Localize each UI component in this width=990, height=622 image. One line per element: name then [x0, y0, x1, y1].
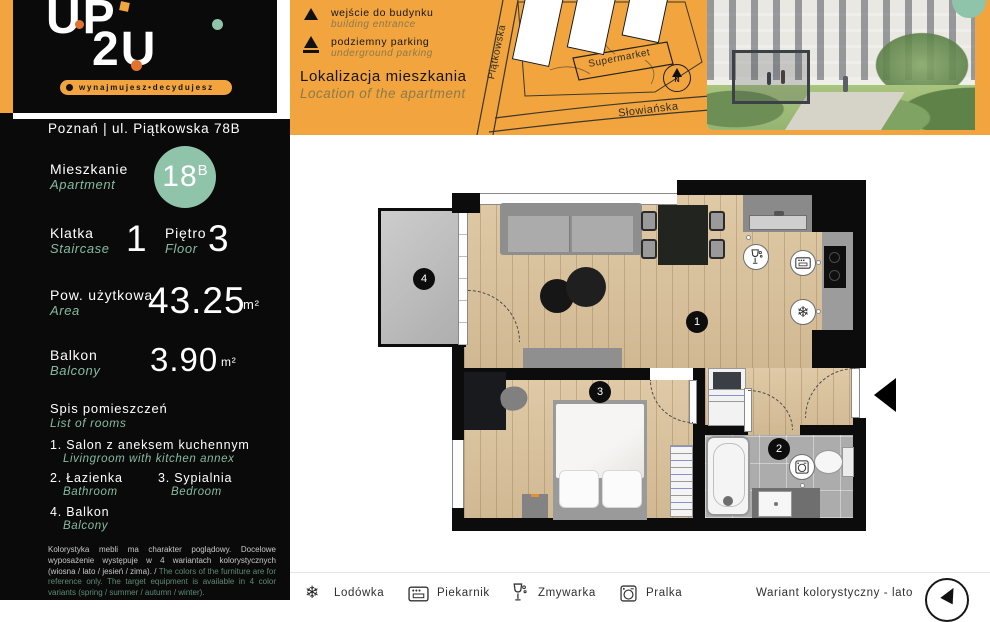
sofa [500, 203, 642, 255]
oven-icon [790, 250, 816, 276]
wall [853, 232, 866, 330]
appliance-legend-bar: ❄ Lodówka Piekarnik Zmywarka Pralka Wari… [290, 572, 990, 601]
room-badge-living: 1 [686, 311, 708, 333]
fridge-label: Lodówka [334, 587, 384, 599]
floor-plan: ❄ 1 2 3 4 [0, 0, 990, 600]
entrance-arrow-icon [874, 378, 896, 412]
dining-chair [641, 239, 657, 259]
hallway-shelf-box [713, 372, 741, 389]
fridge-glyph: ❄ [305, 583, 319, 602]
washer-icon [789, 454, 815, 480]
bed-pillow [602, 470, 642, 508]
bedroom-radiator [670, 445, 693, 517]
color-variant-label: Wariant kolorystyczny - lato [756, 587, 913, 599]
nightstand [522, 494, 548, 518]
sofa-cushion [572, 216, 633, 252]
coffee-table [566, 267, 606, 307]
room-badge-balcony: 4 [413, 268, 435, 290]
burner [829, 270, 840, 281]
marker-dot [816, 260, 821, 265]
wall [677, 180, 866, 195]
wall [452, 518, 866, 531]
wardrobe [464, 372, 506, 430]
nightstand-detail [531, 494, 539, 497]
room-badge-bathroom: 2 [768, 438, 790, 460]
dining-chair [709, 239, 725, 259]
kitchen-sink [749, 215, 807, 230]
fridge-glyph: ❄ [797, 303, 810, 321]
toilet-bowl [814, 450, 843, 474]
bathtub-faucet [723, 496, 733, 506]
footer-compass [925, 578, 969, 622]
burner [829, 252, 840, 263]
dining-table [658, 205, 708, 265]
oven-label: Piekarnik [437, 587, 490, 599]
sofa-cushion [508, 216, 570, 252]
washer-label: Pralka [646, 587, 682, 599]
marker-dot [800, 483, 805, 488]
bedroom-window [452, 440, 464, 508]
hallway-shelf [708, 368, 746, 426]
wall [800, 425, 866, 435]
room-badge-bedroom: 3 [589, 381, 611, 403]
wall [452, 193, 480, 213]
marker-dot [746, 235, 751, 240]
kitchen-faucet [774, 211, 784, 216]
cooktop [824, 246, 846, 288]
fridge-icon: ❄ [790, 299, 816, 325]
wall [705, 425, 748, 435]
tv-sideboard [523, 348, 622, 368]
bed [553, 400, 647, 520]
bathroom-sink [758, 491, 792, 517]
bed-pillow [559, 470, 599, 508]
dining-chair [641, 211, 657, 231]
wall [812, 330, 866, 368]
toilet-tank [842, 447, 854, 477]
bathtub [706, 436, 750, 516]
dishwasher-icon [512, 583, 527, 602]
dining-chair [709, 211, 725, 231]
sink-drain [774, 502, 778, 506]
wall [452, 345, 464, 440]
washer-icon [620, 585, 637, 602]
balcony-glass-wall [458, 213, 468, 345]
fridge-icon: ❄ [305, 583, 319, 603]
wall [812, 195, 866, 232]
dishwasher-label: Zmywarka [538, 587, 596, 599]
dishwasher-icon [743, 244, 769, 270]
marker-dot [816, 309, 821, 314]
wall [452, 508, 464, 520]
footer-compass-needle-icon [940, 585, 959, 605]
bed-duvet [556, 404, 644, 478]
